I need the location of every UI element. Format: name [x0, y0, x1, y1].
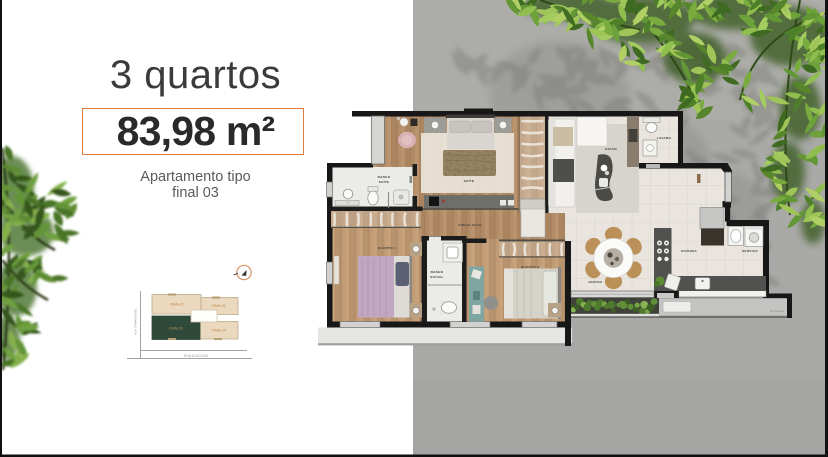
svg-text:SUÍTE: SUÍTE	[379, 179, 390, 184]
svg-text:BANHO: BANHO	[431, 270, 444, 274]
svg-text:RUA TAMANDARÉ: RUA TAMANDARÉ	[133, 309, 138, 335]
svg-text:JANTAR: JANTAR	[588, 280, 603, 284]
svg-text:LAVABO: LAVABO	[657, 136, 672, 140]
svg-text:SERVIÇO: SERVIÇO	[742, 249, 758, 253]
svg-text:FINAL 03: FINAL 03	[169, 327, 183, 331]
svg-text:BANHO: BANHO	[378, 175, 391, 179]
svg-text:RUA ALAGOAS: RUA ALAGOAS	[184, 354, 209, 358]
svg-text:SUÍTE: SUÍTE	[464, 178, 475, 183]
svg-text:QUARTO 1: QUARTO 1	[378, 246, 396, 250]
svg-text:luz técnica: luz técnica	[770, 309, 785, 313]
svg-text:QUARTO 2: QUARTO 2	[521, 265, 539, 269]
svg-text:FINAL 04: FINAL 04	[212, 329, 226, 333]
svg-text:ESTAR: ESTAR	[605, 147, 617, 151]
svg-text:FINAL 01: FINAL 01	[212, 304, 226, 308]
svg-text:CIRCULAÇÃO: CIRCULAÇÃO	[458, 222, 482, 227]
svg-text:FINAL 02: FINAL 02	[170, 303, 184, 307]
svg-text:SOCIAL: SOCIAL	[430, 275, 444, 279]
svg-text:COZINHA: COZINHA	[681, 249, 698, 253]
